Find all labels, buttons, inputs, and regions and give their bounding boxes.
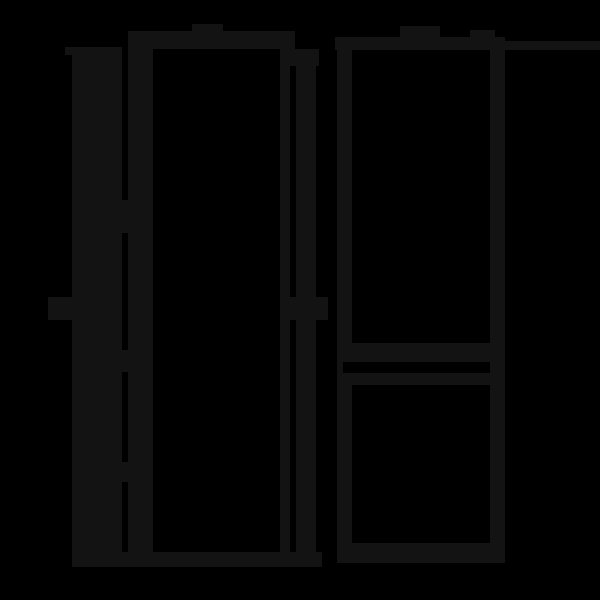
lf-top-tab [192, 24, 223, 31]
lf-door-top-cap [65, 47, 122, 55]
lf-shoulder-step [280, 49, 319, 66]
rf-door-gap-notch [343, 362, 352, 373]
rf-top-bar [335, 37, 505, 50]
lf-bottom-bar [72, 552, 322, 567]
pictogram-two-refrigerators [0, 0, 600, 600]
rf-upper-door-bottom-edge [352, 343, 490, 362]
lf-top-bar [128, 31, 295, 49]
lf-left-wall [128, 31, 153, 567]
rf-right-wall [490, 50, 505, 552]
rf-top-line-extension [505, 41, 600, 50]
lf-door-panel [72, 55, 122, 552]
rf-left-wall [337, 50, 352, 552]
lf-right-handle [287, 297, 328, 320]
rf-lower-door-top-edge [352, 373, 490, 385]
lf-door-handle [48, 297, 72, 320]
rf-bottom-bar [337, 543, 505, 563]
